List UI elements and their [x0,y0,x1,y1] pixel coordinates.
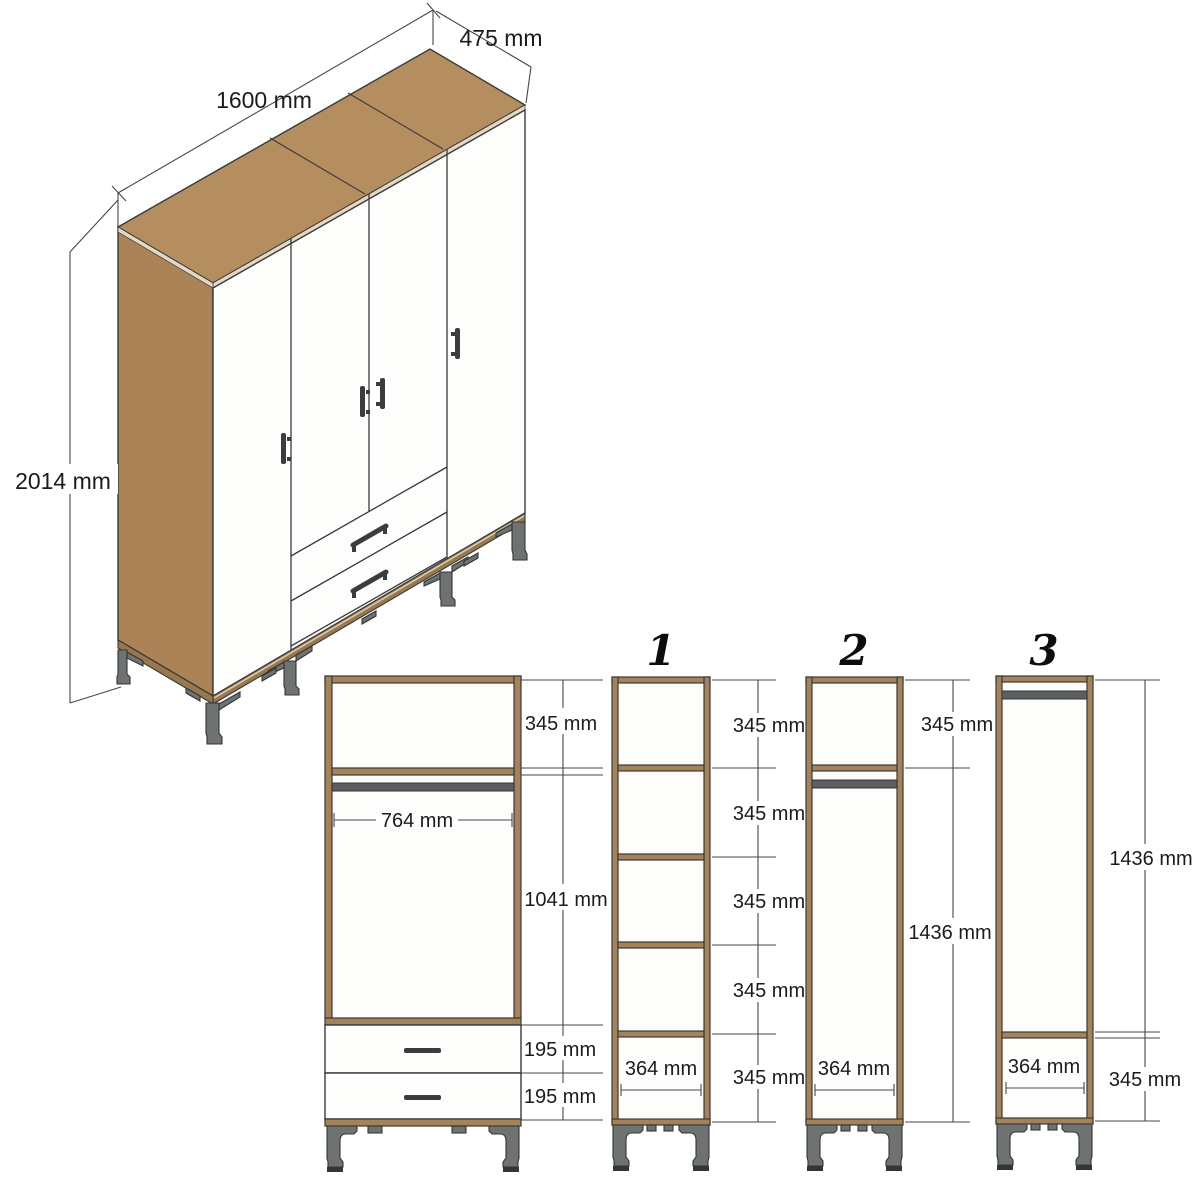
technical-drawing-page: 1600 mm 475 mm 2014 mm [0,0,1203,1180]
section-2-hanging-label: 1436 mm [908,922,991,944]
front-right-stile [514,676,521,1018]
section-1-shelf [618,854,704,860]
section-view-2: 2 345 mm 1436 mm 364 mm [806,626,995,1171]
section-1-interior [616,681,706,1121]
front-hanging-height-label: 1041 mm [524,889,607,911]
section-1-top-rail [612,677,710,683]
leg [1062,1124,1092,1165]
section-2-top-label: 345 mm [921,714,993,736]
section-1-dim-label: 345 mm [733,1067,805,1089]
section-3-interior [1000,680,1089,1120]
section-3-left-stile [996,676,1002,1124]
section-1-width-label: 364 mm [625,1058,697,1080]
front-top-compartment-label: 345 mm [525,713,597,735]
base-tab [841,1125,850,1131]
iso-height-label: 2014 mm [15,468,111,494]
section-2-legs [807,1125,902,1171]
leg [512,522,527,560]
section-3-bottom-label: 345 mm [1109,1069,1181,1091]
front-drawer-lower-label: 195 mm [524,1086,596,1108]
wardrobe-technical-drawing: 1600 mm 475 mm 2014 mm [0,0,1203,1180]
drawer-handle [404,1048,441,1053]
section-3-top-rail [996,676,1093,682]
leg-foot [1076,1165,1092,1170]
section-3-header: 3 [1029,626,1058,675]
section-3-hanging-label: 1436 mm [1109,848,1192,870]
section-3-right-stile [1087,676,1093,1124]
leg [327,1126,357,1167]
section-2-bottom-rail [806,1119,903,1125]
section-1-shelf [618,942,704,948]
drawer-handle [404,1095,441,1100]
base-tab [858,1125,867,1131]
section-2-hanging-rod [812,780,897,788]
section-2-interior [810,681,899,1121]
section-1-shelf [618,765,704,771]
leg-foot [503,1167,519,1172]
base-tab [1031,1124,1040,1130]
section-1-bottom-rail [612,1119,710,1125]
section-1-header: 1 [646,626,675,675]
leg [997,1124,1027,1165]
leg-foot [807,1166,823,1171]
section-2-top-rail [806,677,903,683]
section-3-legs [997,1124,1092,1170]
section-1-legs [613,1125,709,1171]
leg [679,1125,709,1166]
base-tab [368,1126,382,1133]
leg-foot [693,1166,709,1171]
section-2-width-label: 364 mm [818,1058,890,1080]
section-1-dim-label: 345 mm [733,715,805,737]
leg-foot [327,1167,343,1172]
iso-width-label: 1600 mm [216,87,312,113]
section-3-width-label: 364 mm [1008,1056,1080,1078]
leg [807,1125,837,1166]
section-3-hanging-rod [1002,691,1087,699]
front-left-stile [325,676,332,1018]
leg [872,1125,902,1166]
leg-foot [997,1165,1013,1170]
base-tab [1048,1124,1057,1130]
front-interior [329,680,517,1021]
front-drawer-upper-label: 195 mm [524,1039,596,1061]
base-tab [647,1125,656,1131]
wardrobe-side-panel [118,227,213,696]
section-1-dim-label: 345 mm [733,891,805,913]
front-right-dims: 345 mm 1041 mm 195 mm 195 mm [521,680,614,1120]
base-tab [664,1125,673,1131]
front-hanging-width-label: 764 mm [381,810,453,832]
leg [284,661,299,695]
section-view-1: 1 345 mm 345 mm [612,626,805,1171]
leg-foot [613,1166,629,1171]
front-bottom-rail [325,1119,521,1126]
iso-depth-label: 475 mm [459,25,542,51]
leg [440,572,455,606]
dimension-height: 2014 mm [10,200,121,703]
base-tab [452,1126,466,1133]
section-2-header: 2 [838,626,868,675]
section-2-right-stile [897,677,903,1125]
leg [489,1126,519,1167]
front-view-legs [327,1126,519,1172]
front-top-rail [325,676,521,683]
front-section-view: 764 mm 345 mm 1041 mm 195 mm 195 mm [325,676,614,1172]
section-3-bottom-rail [996,1118,1093,1124]
section-1-left-stile [612,677,618,1125]
section-3-shelf [1002,1032,1087,1038]
leg [613,1125,643,1166]
section-1-dim-label: 345 mm [733,980,805,1002]
hanging-rod [332,783,514,791]
isometric-view: 1600 mm 475 mm 2014 mm [10,3,543,744]
section-2-shelf [812,765,897,771]
section-1-dim-label: 345 mm [733,803,805,825]
drawer-box-shelf [325,1018,521,1025]
leg-foot [886,1166,902,1171]
section-1-shelf [618,1031,704,1037]
front-top-shelf [332,768,514,775]
section-2-left-stile [806,677,812,1125]
section-1-right-stile [704,677,710,1125]
section-view-3: 3 1436 mm 345 mm 364 [996,626,1198,1170]
